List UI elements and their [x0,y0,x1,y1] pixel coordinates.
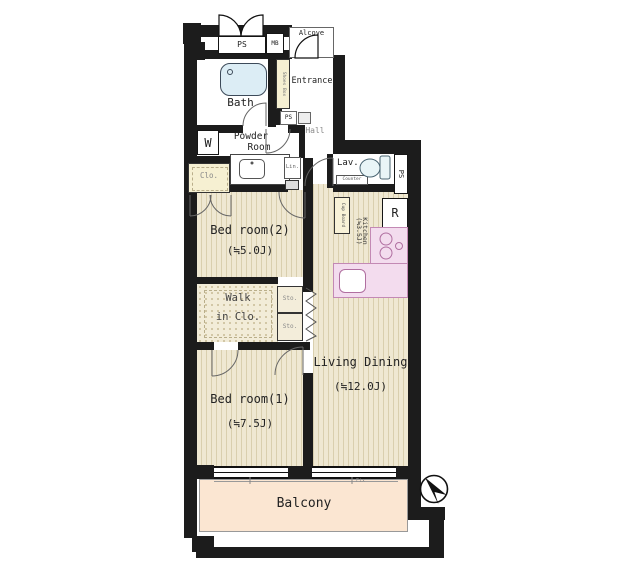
gas-stove-burner-icon [380,247,392,259]
toilet-icon [360,159,380,177]
hall-living-door-arc [305,158,333,186]
plan-overlay [0,0,640,569]
sill-tick [250,477,352,484]
bath-door-arc [243,103,266,126]
walkin-door-arc [212,350,238,376]
ps-door-left-arc [219,15,241,36]
toilet-tank-icon [380,156,390,179]
bedroom2-door-arc [279,192,305,218]
gas-stove-burner-icon [380,233,392,245]
faucet-icon [251,162,254,165]
gas-stove-burner-icon [396,243,403,250]
compass-icon [421,476,448,505]
ps-door-right-arc [241,15,263,36]
folding-door-icon [306,288,316,341]
floor-plan: PS MB Alcove Shoes Box PS W Lin. Clo. St… [0,0,640,569]
entrance-door-arc [295,35,318,58]
powder-door-arc [266,129,290,153]
closet-door-left-arc [190,195,211,216]
bedroom1-door-arc [275,347,303,375]
closet-door-right-arc [210,195,231,216]
bathtub-drain-icon [228,70,233,75]
